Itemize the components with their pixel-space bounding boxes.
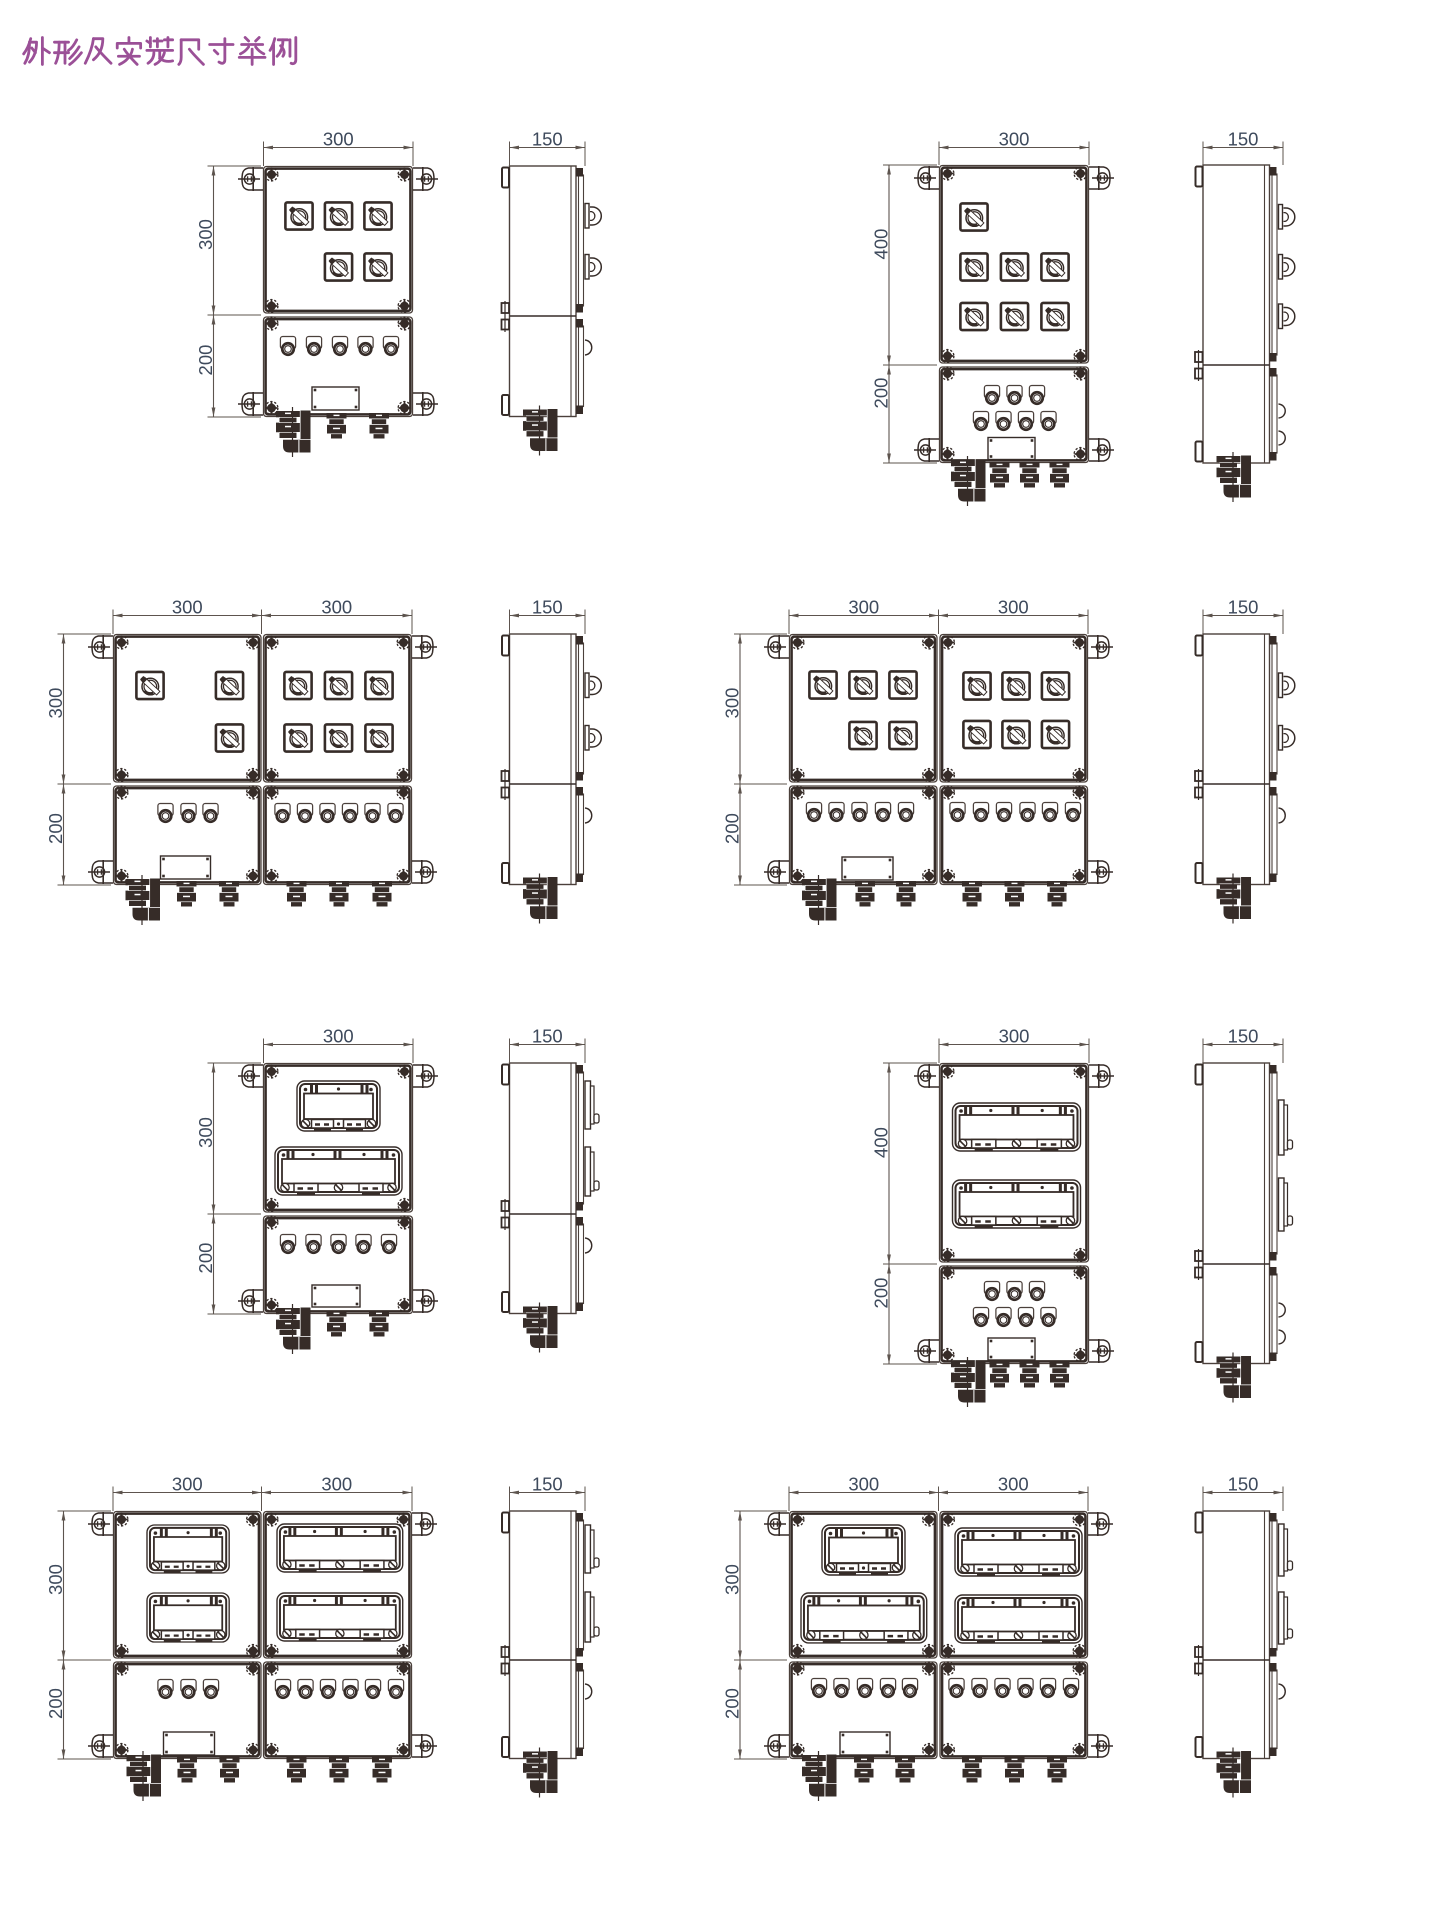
svg-text:300: 300 <box>998 1473 1029 1494</box>
svg-text:300: 300 <box>172 1473 203 1494</box>
svg-text:200: 200 <box>722 813 743 844</box>
svg-text:400: 400 <box>871 1127 892 1158</box>
svg-text:300: 300 <box>722 1564 743 1595</box>
svg-text:200: 200 <box>195 1243 216 1274</box>
svg-text:300: 300 <box>195 1117 216 1148</box>
svg-text:150: 150 <box>532 128 563 149</box>
svg-text:150: 150 <box>1228 1025 1259 1046</box>
svg-text:150: 150 <box>1228 596 1259 617</box>
svg-text:200: 200 <box>871 1278 892 1309</box>
svg-text:300: 300 <box>999 128 1030 149</box>
svg-text:200: 200 <box>45 813 66 844</box>
svg-text:150: 150 <box>532 1025 563 1046</box>
svg-text:200: 200 <box>722 1688 743 1719</box>
svg-text:200: 200 <box>871 378 892 409</box>
svg-text:300: 300 <box>323 128 354 149</box>
svg-text:300: 300 <box>172 596 203 617</box>
svg-text:300: 300 <box>848 1473 879 1494</box>
svg-text:300: 300 <box>195 219 216 250</box>
svg-text:300: 300 <box>722 688 743 719</box>
svg-text:150: 150 <box>532 596 563 617</box>
svg-text:200: 200 <box>195 345 216 376</box>
svg-text:300: 300 <box>45 1564 66 1595</box>
svg-text:200: 200 <box>45 1688 66 1719</box>
svg-text:300: 300 <box>998 596 1029 617</box>
svg-text:400: 400 <box>871 229 892 260</box>
svg-text:300: 300 <box>321 1473 352 1494</box>
svg-text:150: 150 <box>1228 1473 1259 1494</box>
svg-text:300: 300 <box>848 596 879 617</box>
svg-text:300: 300 <box>999 1025 1030 1046</box>
svg-text:150: 150 <box>532 1473 563 1494</box>
svg-text:150: 150 <box>1228 128 1259 149</box>
svg-text:300: 300 <box>323 1025 354 1046</box>
svg-text:300: 300 <box>321 596 352 617</box>
svg-text:300: 300 <box>45 688 66 719</box>
